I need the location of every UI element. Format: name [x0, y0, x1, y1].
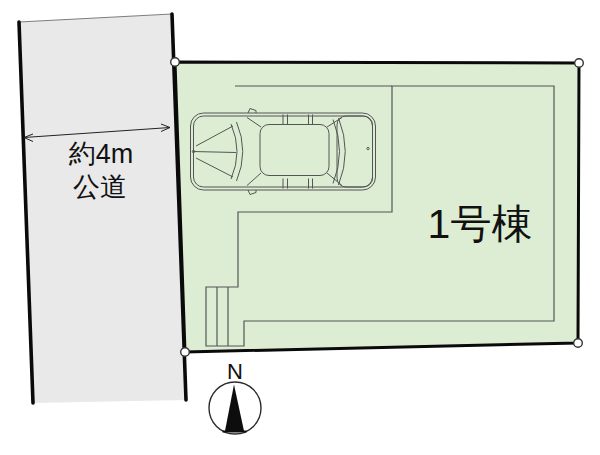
corner-marker-bottom-right [574, 339, 583, 348]
building-number-label: 1号棟 [428, 201, 533, 247]
road-surface [19, 14, 186, 403]
plot-layout-diagram: 約4m 公道 [0, 0, 600, 455]
corner-marker-top-right [575, 59, 584, 68]
compass-icon: N [209, 359, 261, 434]
corner-marker-bottom-left [181, 348, 190, 357]
road-width-label: 約4m [69, 139, 134, 169]
compass-north-label: N [227, 359, 243, 384]
road-type-label: 公道 [73, 172, 127, 202]
diagram-canvas: 約4m 公道 [0, 0, 600, 455]
plot: 1号棟 [175, 62, 579, 352]
corner-marker-top-left [171, 58, 180, 67]
road: 約4m 公道 [19, 14, 186, 403]
